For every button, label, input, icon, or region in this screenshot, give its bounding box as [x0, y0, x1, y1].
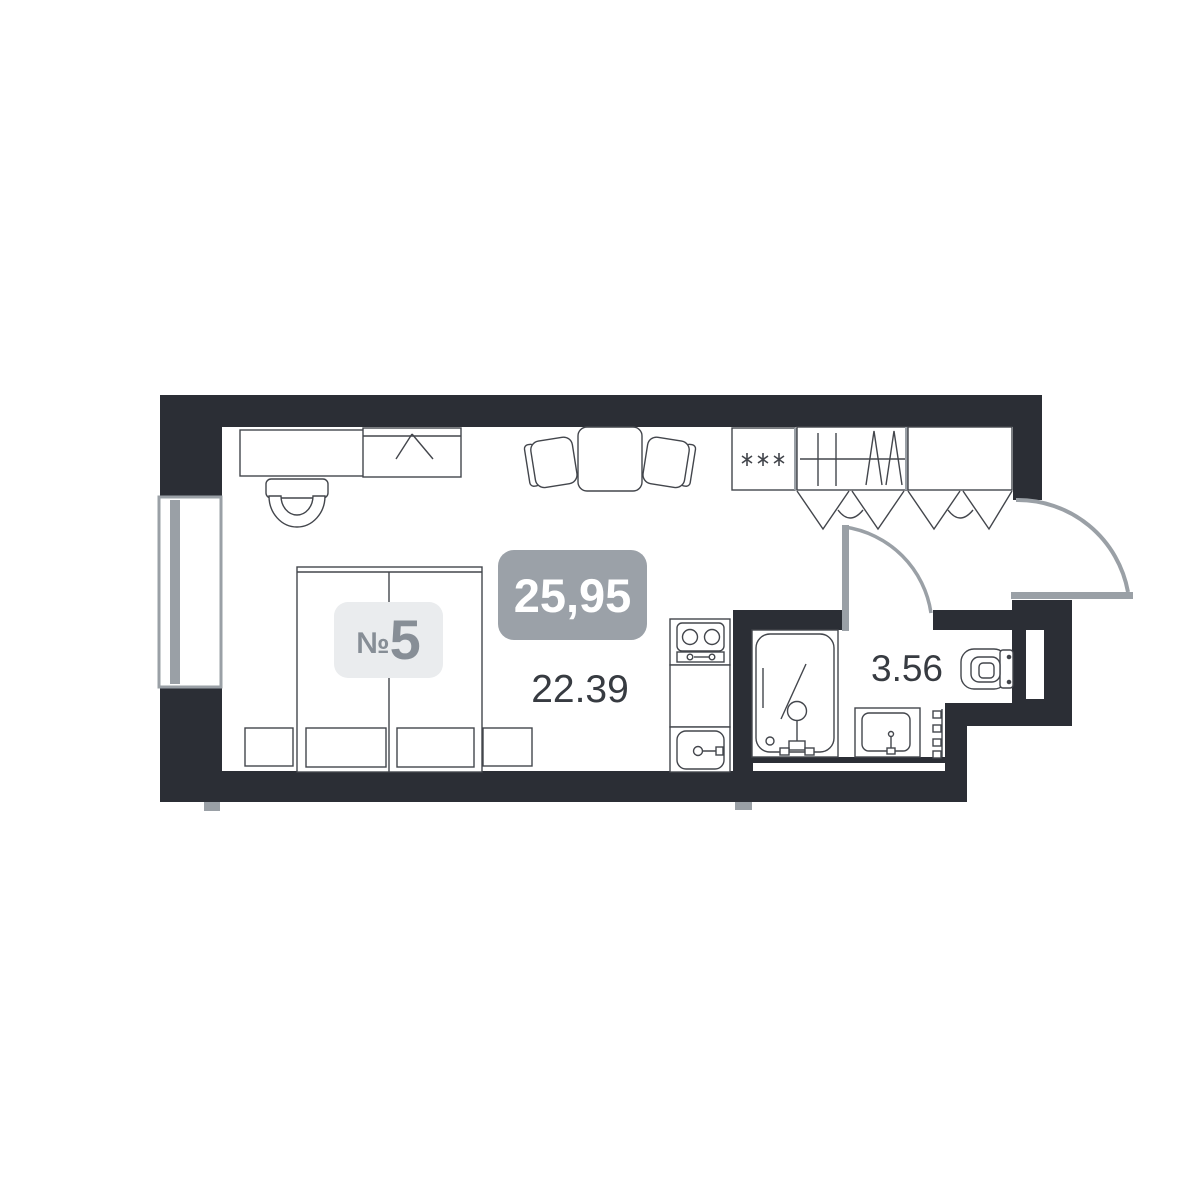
unit-number-badge: №5: [334, 602, 443, 678]
entry-door: [1011, 500, 1133, 599]
desk: [240, 430, 365, 476]
nightstand-left: [245, 728, 293, 766]
floor-plan: №5 25,95 22.39 3.56: [0, 0, 1200, 1200]
pillow: [397, 728, 474, 767]
window: [159, 497, 221, 687]
pillow: [306, 728, 386, 767]
wall-nubs: [204, 802, 752, 811]
towel-radiator: [933, 709, 942, 758]
kitchen-counter: [670, 665, 730, 727]
bathtub: [752, 630, 838, 757]
unit-number-value: 5: [390, 612, 421, 668]
hall-wardrobe: [797, 427, 907, 490]
kitchen-sink: [670, 727, 730, 772]
nightstand-right: [483, 728, 532, 766]
folding-doors: [797, 491, 1012, 529]
main-room-area-label: 22.39: [531, 668, 629, 712]
bathroom-area-label: 3.56: [871, 648, 943, 690]
desk-chair: [266, 479, 328, 527]
stove: [670, 619, 730, 665]
hall-closet: [908, 427, 1012, 490]
total-area-value: 25,95: [514, 568, 632, 623]
toilet: [961, 649, 1013, 689]
wardrobe: [363, 428, 461, 477]
dining-chair-right: [642, 436, 697, 490]
washbasin: [855, 708, 920, 757]
unit-number-prefix: №: [356, 627, 389, 661]
dining-chair-left: [524, 436, 579, 490]
vent-shaft: [1026, 630, 1044, 699]
fridge: [732, 428, 795, 490]
bathroom-door: [842, 525, 931, 631]
dining-table: [578, 427, 642, 491]
total-area-badge: 25,95: [498, 550, 647, 640]
